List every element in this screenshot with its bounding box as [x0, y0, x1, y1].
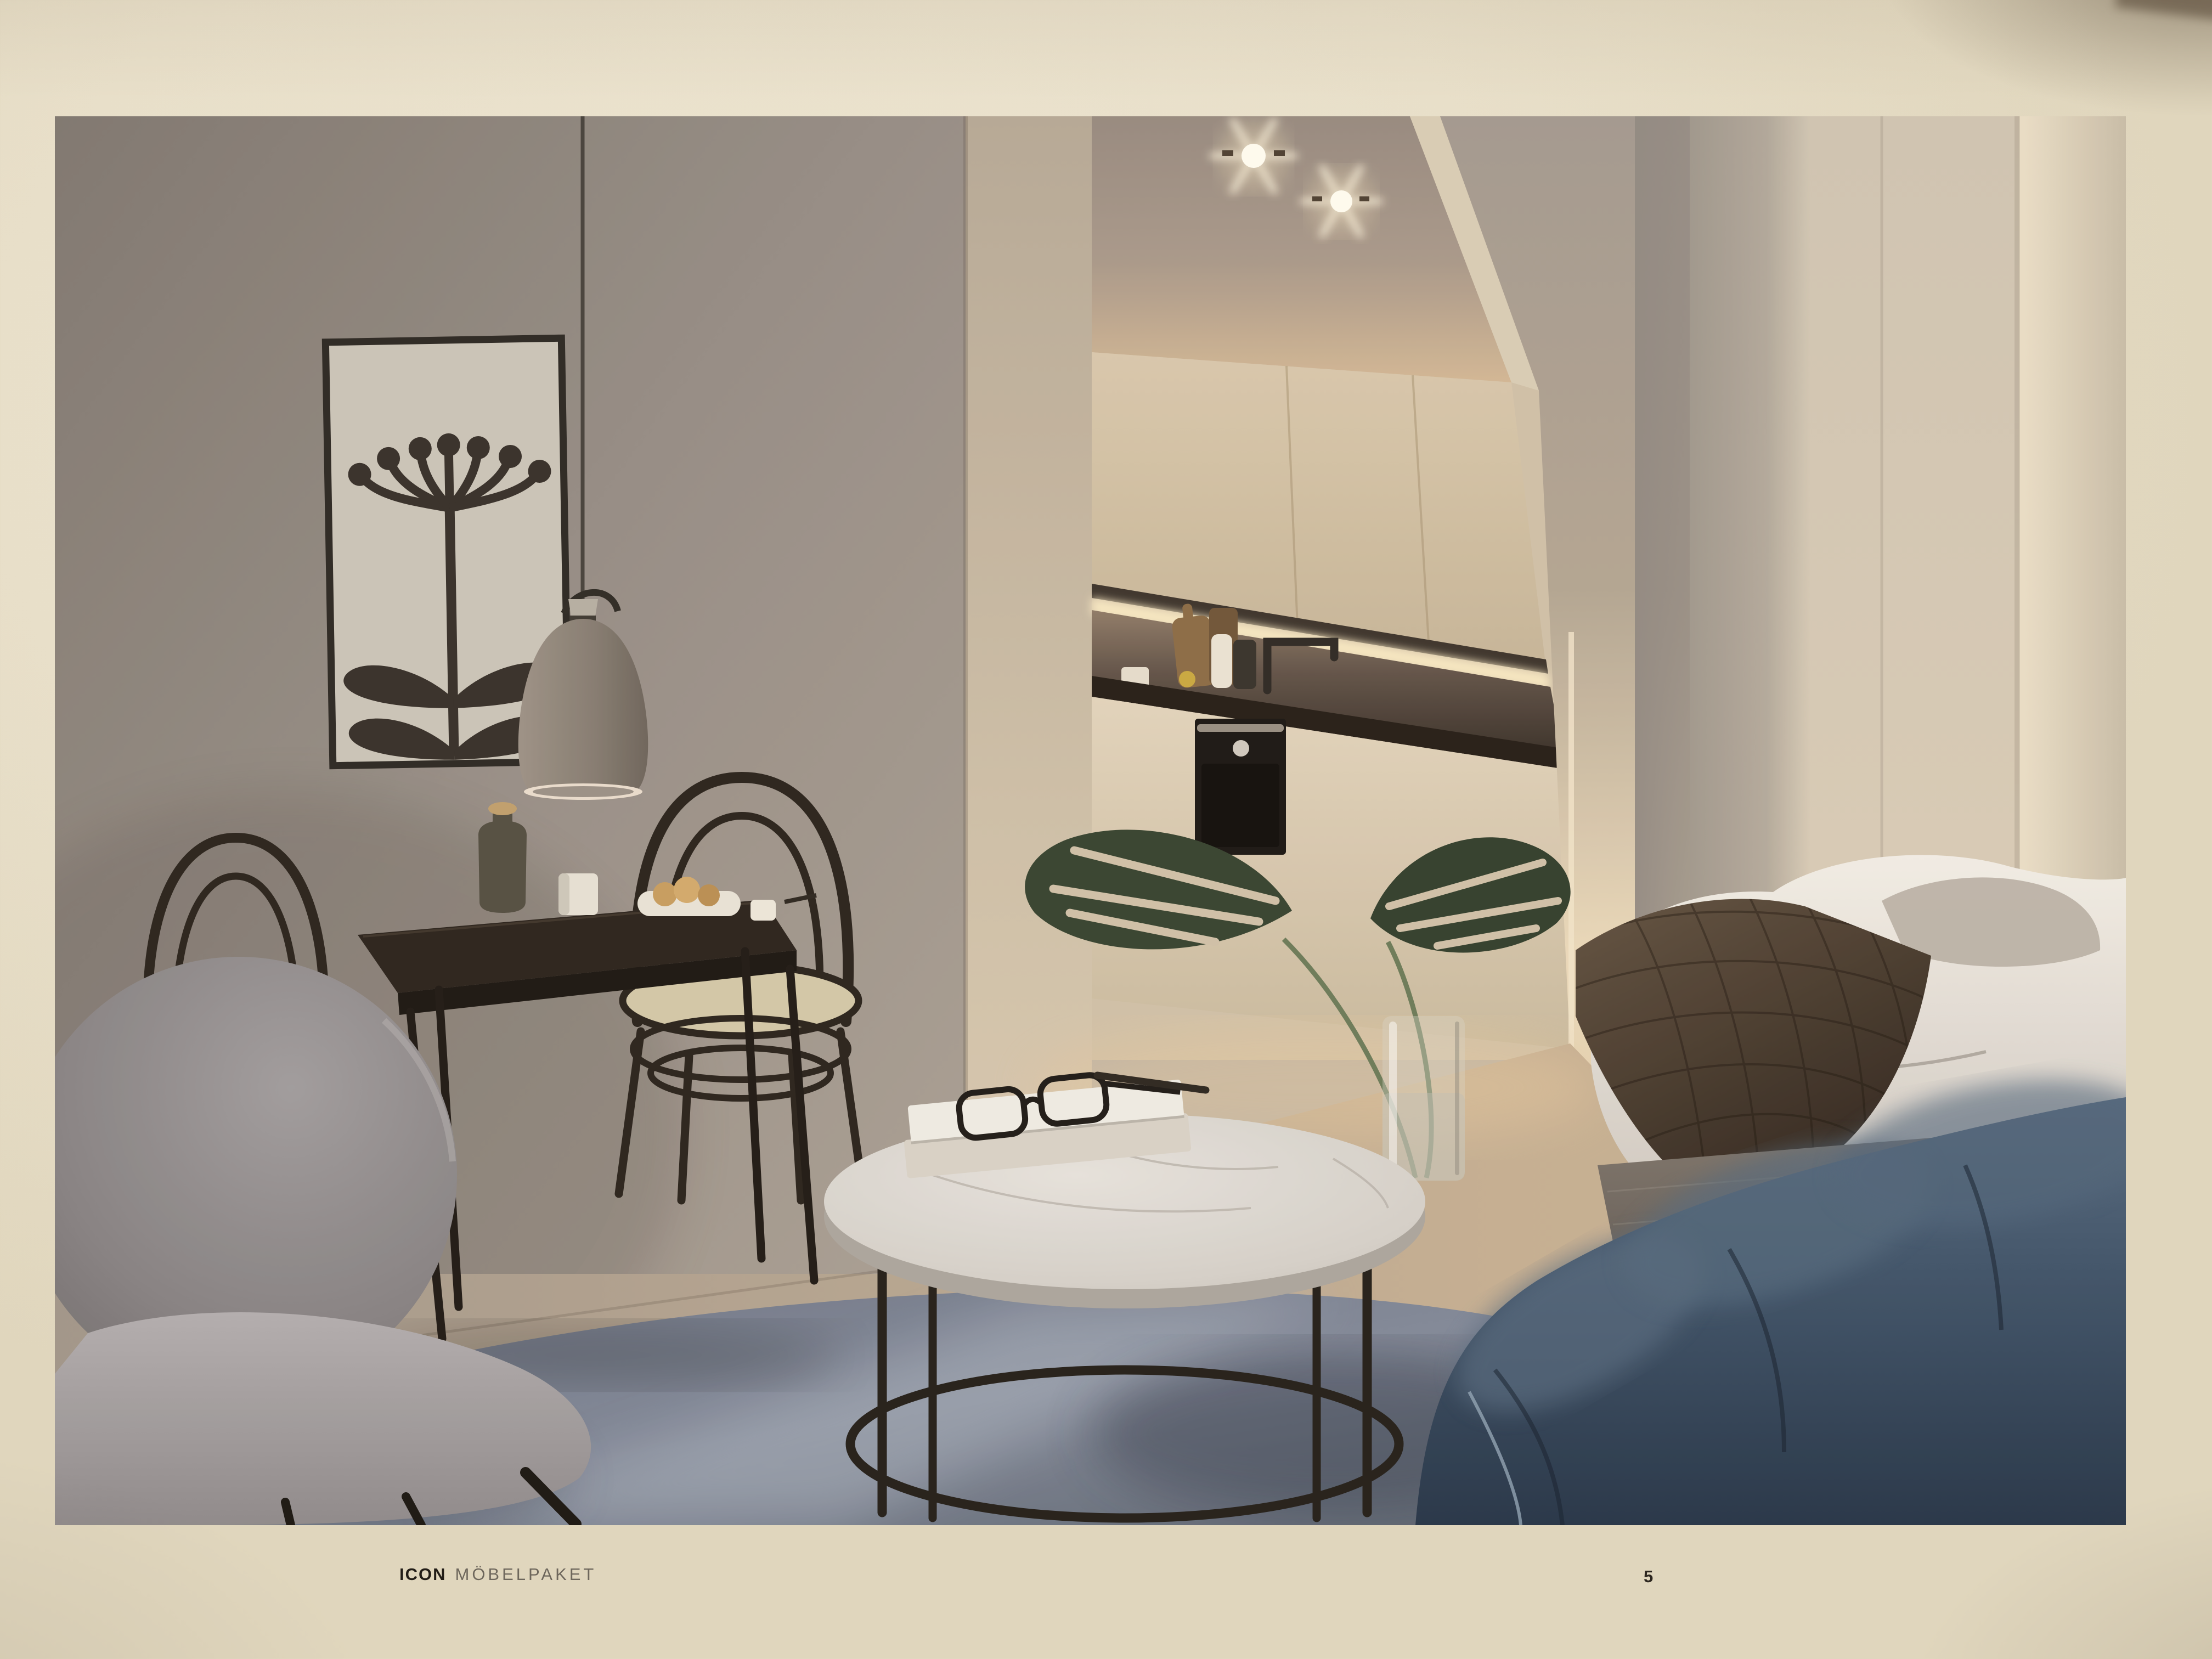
page-shadow-topright: [2115, 0, 2212, 23]
interior-render: [55, 116, 2126, 1525]
brochure-page: ICONMÖBELPAKET 5: [0, 0, 2212, 1659]
interior-photo: [55, 116, 2126, 1525]
footer-caption: ICONMÖBELPAKET: [399, 1565, 596, 1584]
footer-label: MÖBELPAKET: [455, 1565, 597, 1584]
page-number: 5: [1644, 1567, 1654, 1587]
photo-color-cast: [55, 116, 2126, 1525]
footer-series: ICON: [399, 1565, 447, 1584]
